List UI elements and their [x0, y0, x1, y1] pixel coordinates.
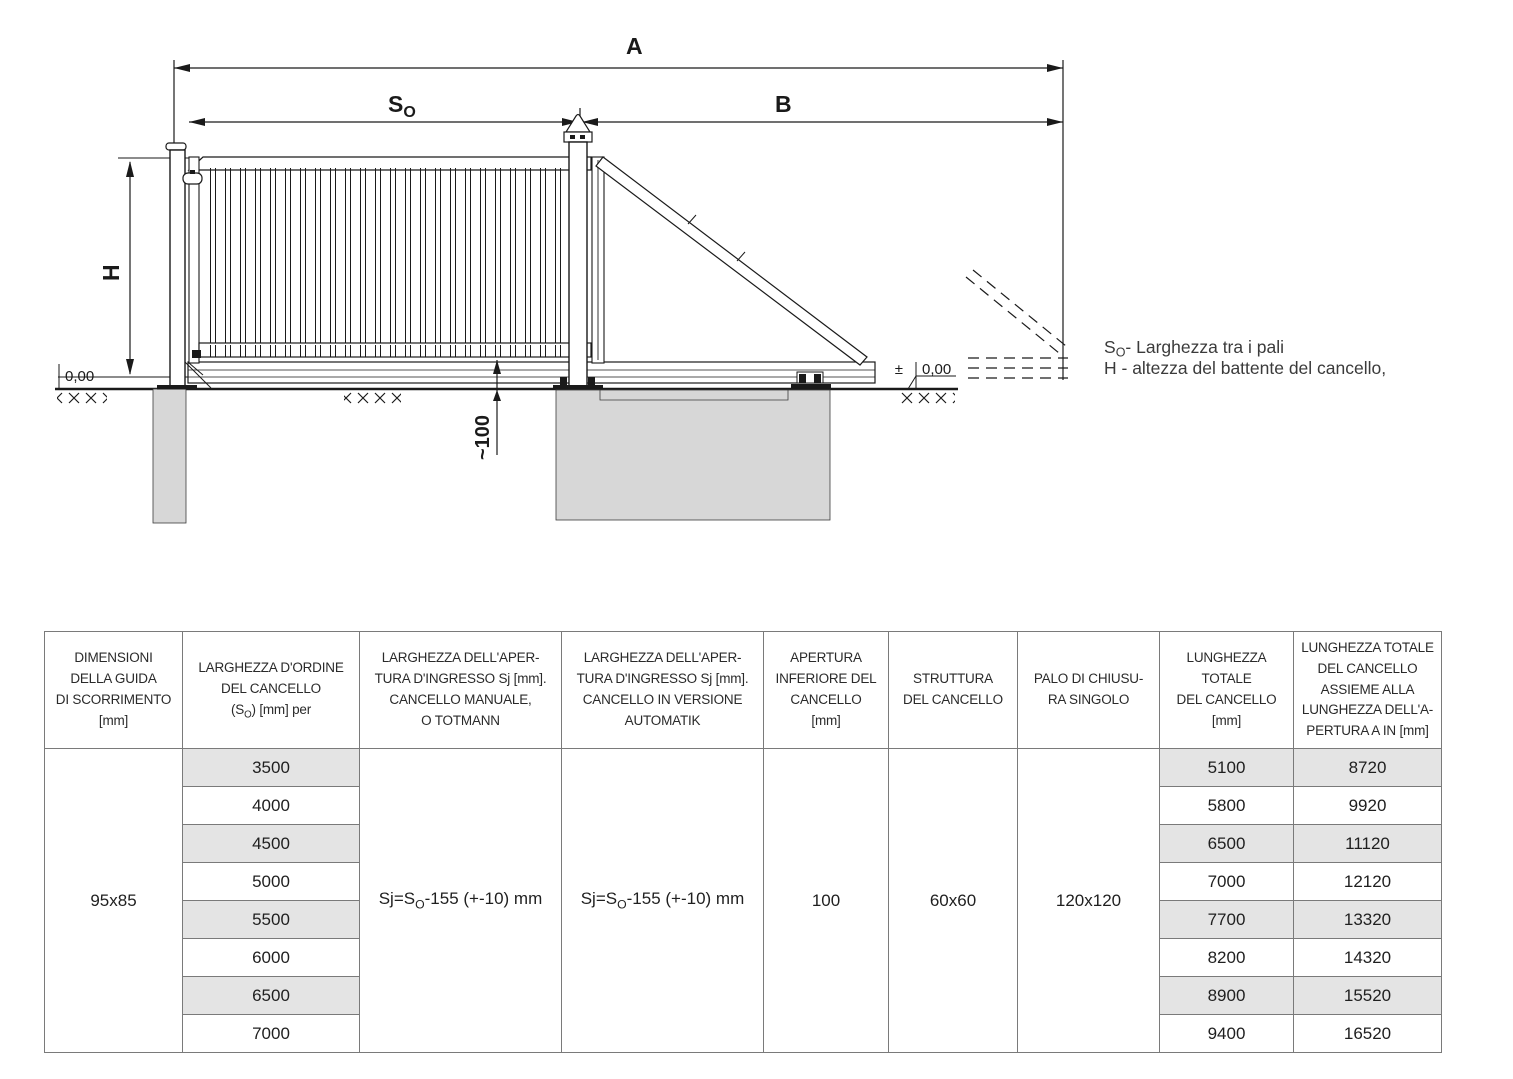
- svg-text:H - altezza del battente del c: H - altezza del battente del cancello,: [1104, 358, 1386, 378]
- header-opening-automatic: LARGHEZZA DELL'APER- TURA D'INGRESSO Sj …: [562, 632, 764, 749]
- dimension-gap-label: ~100: [472, 415, 494, 460]
- length-cell: 8200: [1160, 939, 1294, 977]
- dimension-a-label: A: [626, 33, 643, 59]
- apertura-cell: 100: [764, 749, 889, 1053]
- length-cell: 8900: [1160, 977, 1294, 1015]
- total-cell: 9920: [1294, 787, 1442, 825]
- dimension-h-label: H: [98, 264, 124, 281]
- left-post: [157, 68, 211, 390]
- so-cell: 4000: [183, 787, 360, 825]
- so-cell: 7000: [183, 1015, 360, 1053]
- length-cell: 9400: [1160, 1015, 1294, 1053]
- ground-hatch-right: [898, 391, 955, 404]
- svg-text:±: ±: [895, 361, 903, 378]
- guide-size-cell: 95x85: [45, 749, 183, 1053]
- header-guide-dimensions: DIMENSIONI DELLA GUIDA DI SCORRIMENTO [m…: [45, 632, 183, 749]
- so-cell: 3500: [183, 749, 360, 787]
- total-cell: 11120: [1294, 825, 1442, 863]
- dimension-b: [582, 118, 1063, 126]
- header-structure: STRUTTURA DEL CANCELLO: [889, 632, 1018, 749]
- foundation-main: [556, 390, 830, 520]
- ground-hatch-middle: [344, 391, 401, 404]
- gate-leaf: [189, 157, 591, 375]
- level-marker-right: ± 0,00: [895, 361, 956, 389]
- ground-hatch-left: [57, 391, 107, 404]
- so-cell: 6500: [183, 977, 360, 1015]
- length-cell: 7000: [1160, 863, 1294, 901]
- track-beam: [188, 362, 875, 383]
- so-cell: 5000: [183, 863, 360, 901]
- dimension-b-label: B: [775, 91, 792, 117]
- gate-bars: [205, 168, 573, 343]
- auto-formula-cell: Sj=SO-155 (+-10) mm: [562, 749, 764, 1053]
- header-opening-manual: LARGHEZZA DELL'APER- TURA D'INGRESSO Sj …: [360, 632, 562, 749]
- header-total-length-with-opening: LUNGHEZZA TOTALE DEL CANCELLO ASSIEME AL…: [1294, 632, 1442, 749]
- length-cell: 5800: [1160, 787, 1294, 825]
- total-cell: 14320: [1294, 939, 1442, 977]
- legend: SO- Larghezza tra i pali H - altezza del…: [1104, 337, 1386, 378]
- total-cell: 13320: [1294, 901, 1442, 939]
- svg-text:0,00: 0,00: [922, 361, 951, 378]
- palo-cell: 120x120: [1018, 749, 1160, 1053]
- total-cell: 16520: [1294, 1015, 1442, 1053]
- gate-technical-drawing: A SO B H: [0, 0, 1513, 600]
- length-cell: 6500: [1160, 825, 1294, 863]
- table-row: 95x85 3500 Sj=SO-155 (+-10) mm Sj=SO-155…: [45, 749, 1442, 787]
- manual-formula-cell: Sj=SO-155 (+-10) mm: [360, 749, 562, 1053]
- length-cell: 5100: [1160, 749, 1294, 787]
- so-cell: 6000: [183, 939, 360, 977]
- svg-text:0,00: 0,00: [65, 368, 94, 385]
- header-lower-opening: APERTURA INFERIORE DEL CANCELLO [mm]: [764, 632, 889, 749]
- page: A SO B H: [0, 0, 1513, 1079]
- total-cell: 15520: [1294, 977, 1442, 1015]
- length-cell: 7700: [1160, 901, 1294, 939]
- counterbalance-tail: [596, 157, 867, 365]
- level-marker-left: 0,00: [59, 364, 94, 389]
- total-cell: 8720: [1294, 749, 1442, 787]
- dimension-so-label: SO: [388, 91, 416, 121]
- so-cell: 4500: [183, 825, 360, 863]
- header-total-length: LUNGHEZZA TOTALE DEL CANCELLO [mm]: [1160, 632, 1294, 749]
- header-closing-post: PALO DI CHIUSU- RA SINGOLO: [1018, 632, 1160, 749]
- foundation-left: [153, 389, 186, 523]
- header-row: DIMENSIONI DELLA GUIDA DI SCORRIMENTO [m…: [45, 632, 1442, 749]
- phantom-open-gate: [966, 270, 1068, 378]
- dimension-so: [189, 108, 580, 134]
- svg-text:SO- Larghezza tra i pali: SO- Larghezza tra i pali: [1104, 337, 1284, 360]
- gate-spec-table: DIMENSIONI DELLA GUIDA DI SCORRIMENTO [m…: [44, 631, 1442, 1053]
- struttura-cell: 60x60: [889, 749, 1018, 1053]
- header-order-width: LARGHEZZA D'ORDINE DEL CANCELLO (SO) [mm…: [183, 632, 360, 749]
- total-cell: 12120: [1294, 863, 1442, 901]
- so-cell: 5500: [183, 901, 360, 939]
